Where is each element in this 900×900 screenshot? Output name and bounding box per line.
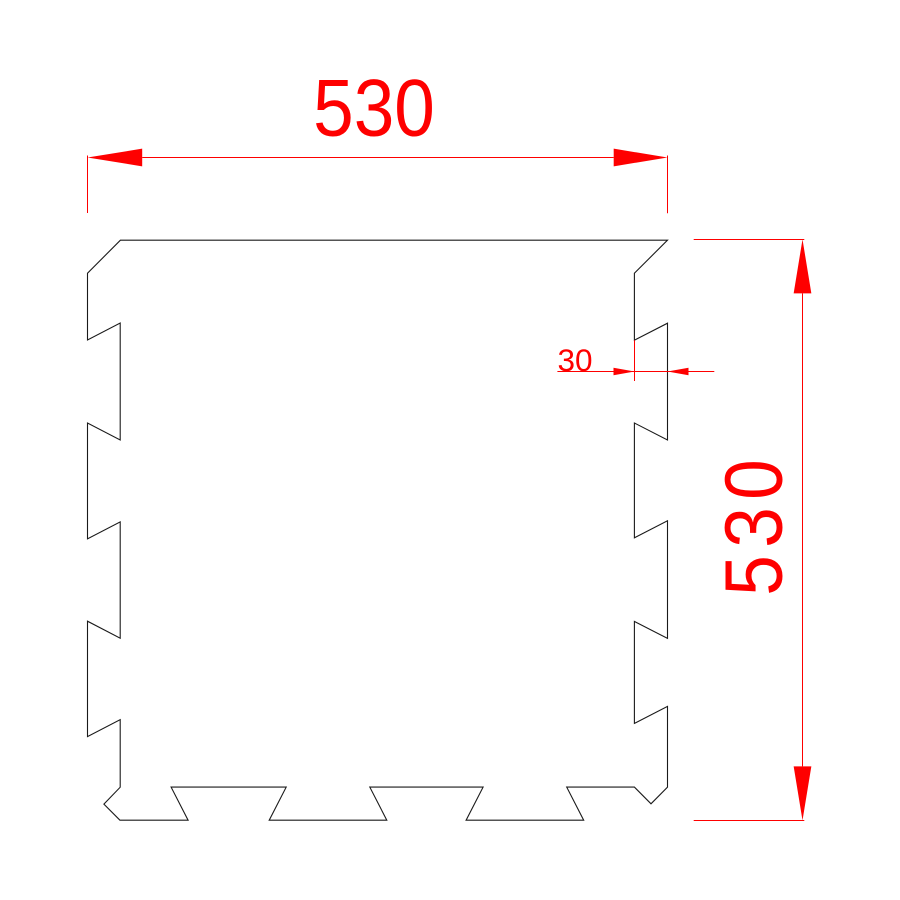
svg-text:530: 530	[313, 63, 435, 153]
svg-text:30: 30	[557, 342, 592, 378]
svg-text:530: 530	[709, 452, 800, 596]
